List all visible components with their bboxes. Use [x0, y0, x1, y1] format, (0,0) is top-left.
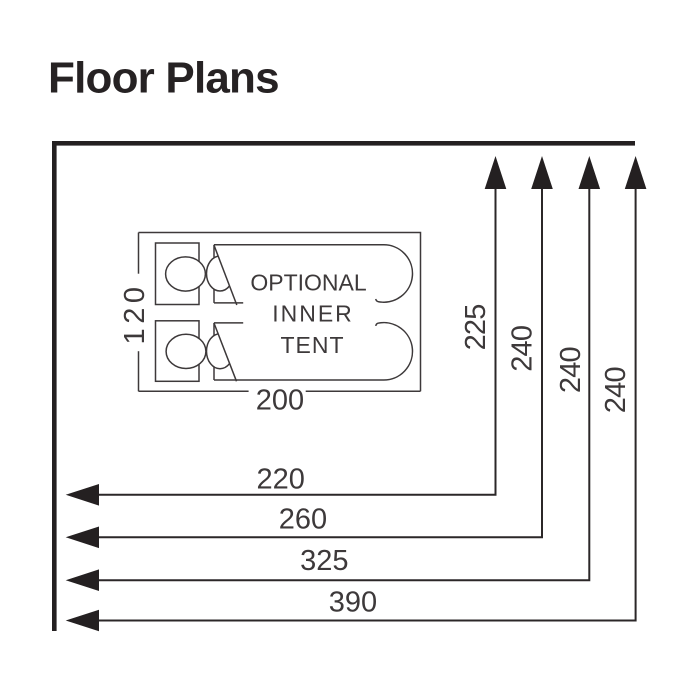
svg-text:TENT: TENT — [280, 332, 344, 358]
svg-text:225: 225 — [460, 304, 492, 350]
svg-text:200: 200 — [256, 385, 304, 417]
svg-text:390: 390 — [329, 586, 377, 618]
svg-text:240: 240 — [507, 326, 539, 372]
svg-text:325: 325 — [300, 545, 348, 577]
svg-text:120: 120 — [119, 283, 151, 345]
svg-text:INNER: INNER — [272, 300, 354, 326]
svg-text:220: 220 — [257, 464, 305, 496]
svg-text:260: 260 — [279, 504, 327, 536]
svg-text:Floor Plans: Floor Plans — [48, 54, 279, 103]
svg-text:240: 240 — [555, 347, 587, 393]
svg-text:240: 240 — [600, 367, 632, 413]
svg-text:OPTIONAL: OPTIONAL — [250, 269, 367, 295]
